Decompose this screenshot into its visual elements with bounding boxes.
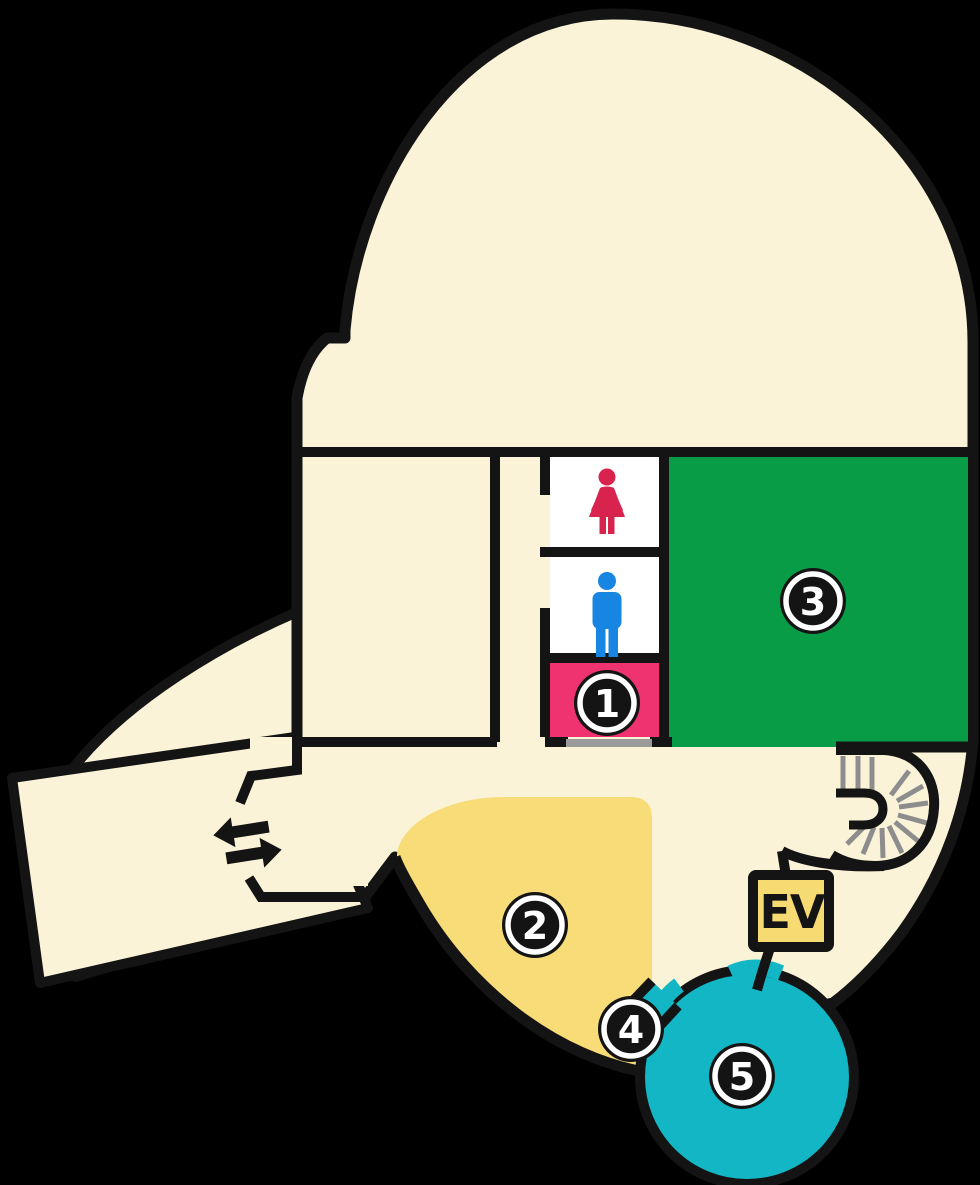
badge-4: 4 — [598, 996, 664, 1062]
floor-map: EV 1 2 3 4 — [0, 0, 980, 1185]
badge-5-number: 5 — [729, 1055, 755, 1099]
badge-4-number: 4 — [618, 1008, 644, 1052]
badge-5: 5 — [709, 1043, 775, 1109]
badge-2: 2 — [502, 892, 568, 958]
badge-3-number: 3 — [800, 580, 826, 624]
elevator-label: EV — [759, 885, 825, 939]
ring-gap-top — [731, 968, 781, 974]
badge-1-number: 1 — [594, 682, 620, 726]
badge-3: 3 — [780, 568, 846, 634]
badge-1: 1 — [574, 670, 640, 736]
floor-map-canvas: EV 1 2 3 4 — [0, 0, 980, 1185]
badge-2-number: 2 — [522, 904, 548, 948]
